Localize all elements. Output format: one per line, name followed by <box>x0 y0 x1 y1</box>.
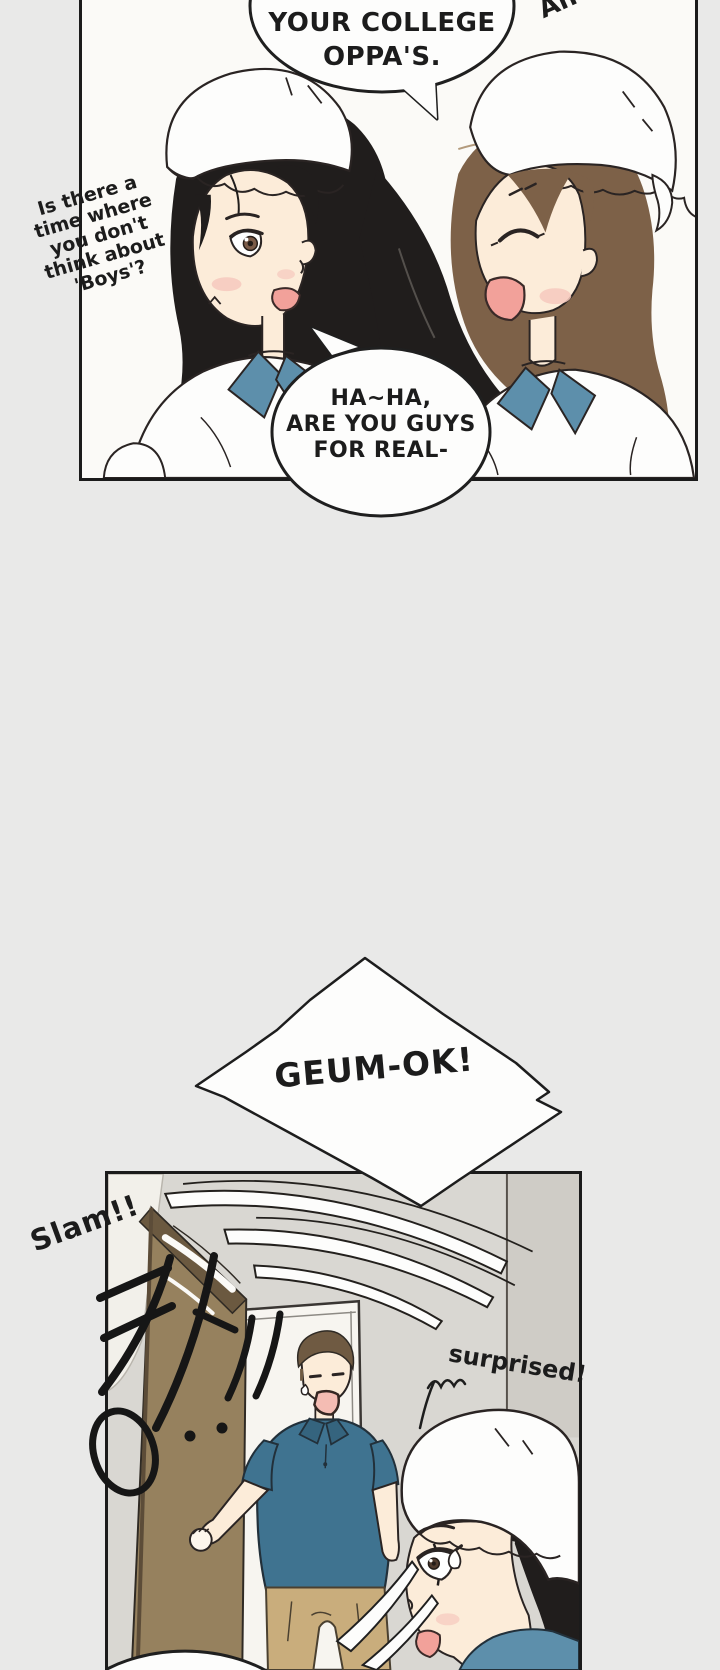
speech-bubble-top-text: YOUR COLLEGE OPPA'S. <box>252 6 512 74</box>
speech-bubble-laugh-text: HA~HA, ARE YOU GUYS FOR REAL- <box>270 386 492 464</box>
shout-burst-text: GEUM-OK! <box>257 1038 492 1097</box>
sfx-korean-slam <box>95 1240 350 1510</box>
girl-foreground-illustration <box>402 1410 579 1670</box>
comic-page: YOUR COLLEGE OPPA'S. Is there a time whe… <box>0 0 720 1670</box>
